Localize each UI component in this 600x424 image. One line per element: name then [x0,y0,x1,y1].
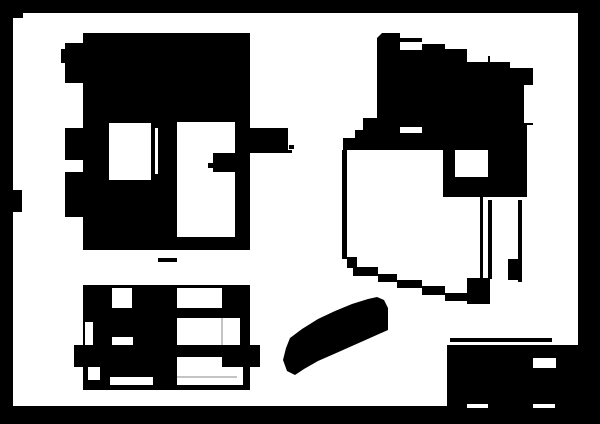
title-block-dash-left [467,404,488,408]
front-view-tab-upper-nub [61,49,65,63]
iso-view-bottom-step-3 [378,274,397,282]
iso-view-sliver-right [524,85,533,123]
iso-view-corner-blob [467,278,490,304]
iso-view-bottom-step-2 [353,267,378,276]
title-block-field-window [533,358,556,368]
front-view-tab-upper [65,43,83,83]
front-view-tab-middle [65,128,83,160]
bottom-view-faint-line-horizontal [177,376,237,378]
iso-view-line-inner-2 [488,200,492,279]
iso-view-notch-b [467,52,488,62]
bottom-view-flange-bar [74,345,260,367]
bottom-view-faint-line-vertical [221,318,223,345]
bottom-view-opening-right [177,318,240,345]
bottom-view-bar-gap [177,357,222,367]
bottom-view-window-top-right [177,288,222,308]
iso-view-bottom-step-5 [422,286,445,295]
bottom-view-window-top-left [112,288,132,308]
drawing-sheet-frame [0,0,600,424]
bottom-view-window-mid-left [112,337,133,345]
front-view-boss-line [250,150,292,153]
bottom-view-notch-bottom-left [88,367,100,380]
border-step-top-left [13,13,23,18]
title-block-dash-right [533,404,555,408]
title-block-body [447,345,578,406]
title-block-top-line [450,338,552,342]
border-notch-left [13,190,22,212]
bottom-view-slot-left [85,322,93,345]
iso-view-line-inner-1 [480,197,483,279]
front-view-inner-block [213,153,235,172]
bottom-view-notch-bottom [110,377,153,385]
front-view-inner-tick [208,163,213,168]
front-view-window-sliver [155,128,158,174]
front-view-tab-lower [65,172,83,217]
front-view-boss-dot [289,145,294,149]
iso-view-window [455,150,488,177]
centerline-dash [158,258,177,262]
iso-view-edge-left [342,150,347,259]
front-view-window-left [109,123,151,180]
engineering-drawing [0,0,600,424]
iso-view-block-right [508,259,520,280]
iso-view-bottom-step-4 [397,280,422,288]
iso-view-notch-a [400,42,422,50]
front-view-boss-right [250,128,288,152]
iso-view-dash [400,127,422,133]
iso-view-bottom-step-1 [347,257,357,268]
front-view-opening-right [177,122,235,237]
iso-view-bottom-step-6 [445,293,467,301]
